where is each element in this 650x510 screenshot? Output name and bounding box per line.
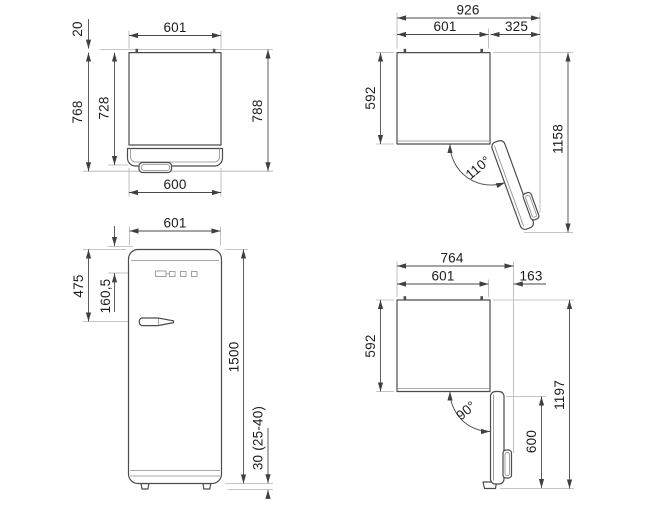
dim-label-handle-from-top: 475 <box>71 274 86 297</box>
dim-label-cabinet-depth: 592 <box>363 86 378 109</box>
dim-label-cabinet-width: 601 <box>433 19 456 34</box>
view-top-closed: 601 20 768 728 788 600 <box>70 19 273 197</box>
dim-label-cabinet-width: 601 <box>431 269 454 284</box>
door-open-90 <box>491 392 512 485</box>
dim-label-total-depth: 1158 <box>551 124 566 154</box>
dim-label-total-depth: 1197 <box>552 380 567 410</box>
dim-label-door-width: 600 <box>163 177 186 192</box>
dim-label-total-width: 926 <box>456 3 479 18</box>
view-front: 601 475 160,5 1500 30 (25-40) <box>71 216 273 498</box>
dim-label-logo-from-top: 160,5 <box>98 279 113 314</box>
dim-label-door-depth: 600 <box>524 430 539 453</box>
dim-label-door-projection: 325 <box>505 19 528 34</box>
fridge-front-outline <box>129 250 222 490</box>
door-open-110 <box>490 137 541 231</box>
dim-label-cabinet-depth: 592 <box>363 334 378 357</box>
fridge-top-outline <box>397 296 512 488</box>
fridge-top-outline <box>397 49 542 231</box>
dim-label-depth-cabinet: 728 <box>97 96 112 119</box>
dim-label-width: 601 <box>163 216 186 231</box>
dim-label-door-projection: 163 <box>519 269 542 284</box>
dim-label-depth-total: 788 <box>250 99 265 122</box>
handle-top-outline <box>139 163 172 173</box>
dim-label-depth-with-door: 768 <box>70 100 85 123</box>
view-top-open-90: 764 601 163 592 600 1197 90° <box>363 251 574 489</box>
dim-label-rear-clearance: 20 <box>70 21 85 36</box>
dim-label-feet-height: 30 (25-40) <box>251 406 266 470</box>
door-handle <box>503 450 512 478</box>
view-top-open-110: 926 601 325 592 1158 110° <box>363 3 573 233</box>
dim-label-door-angle: 90° <box>453 398 479 423</box>
dim-label-width: 601 <box>163 20 186 35</box>
dim-label-total-width: 764 <box>440 251 463 266</box>
fridge-top-outline <box>128 49 223 173</box>
dim-label-height: 1500 <box>227 342 242 373</box>
refrigerator-dimension-drawing: 601 20 768 728 788 600 <box>0 0 650 510</box>
technical-drawing-page: 601 20 768 728 788 600 <box>0 0 650 510</box>
